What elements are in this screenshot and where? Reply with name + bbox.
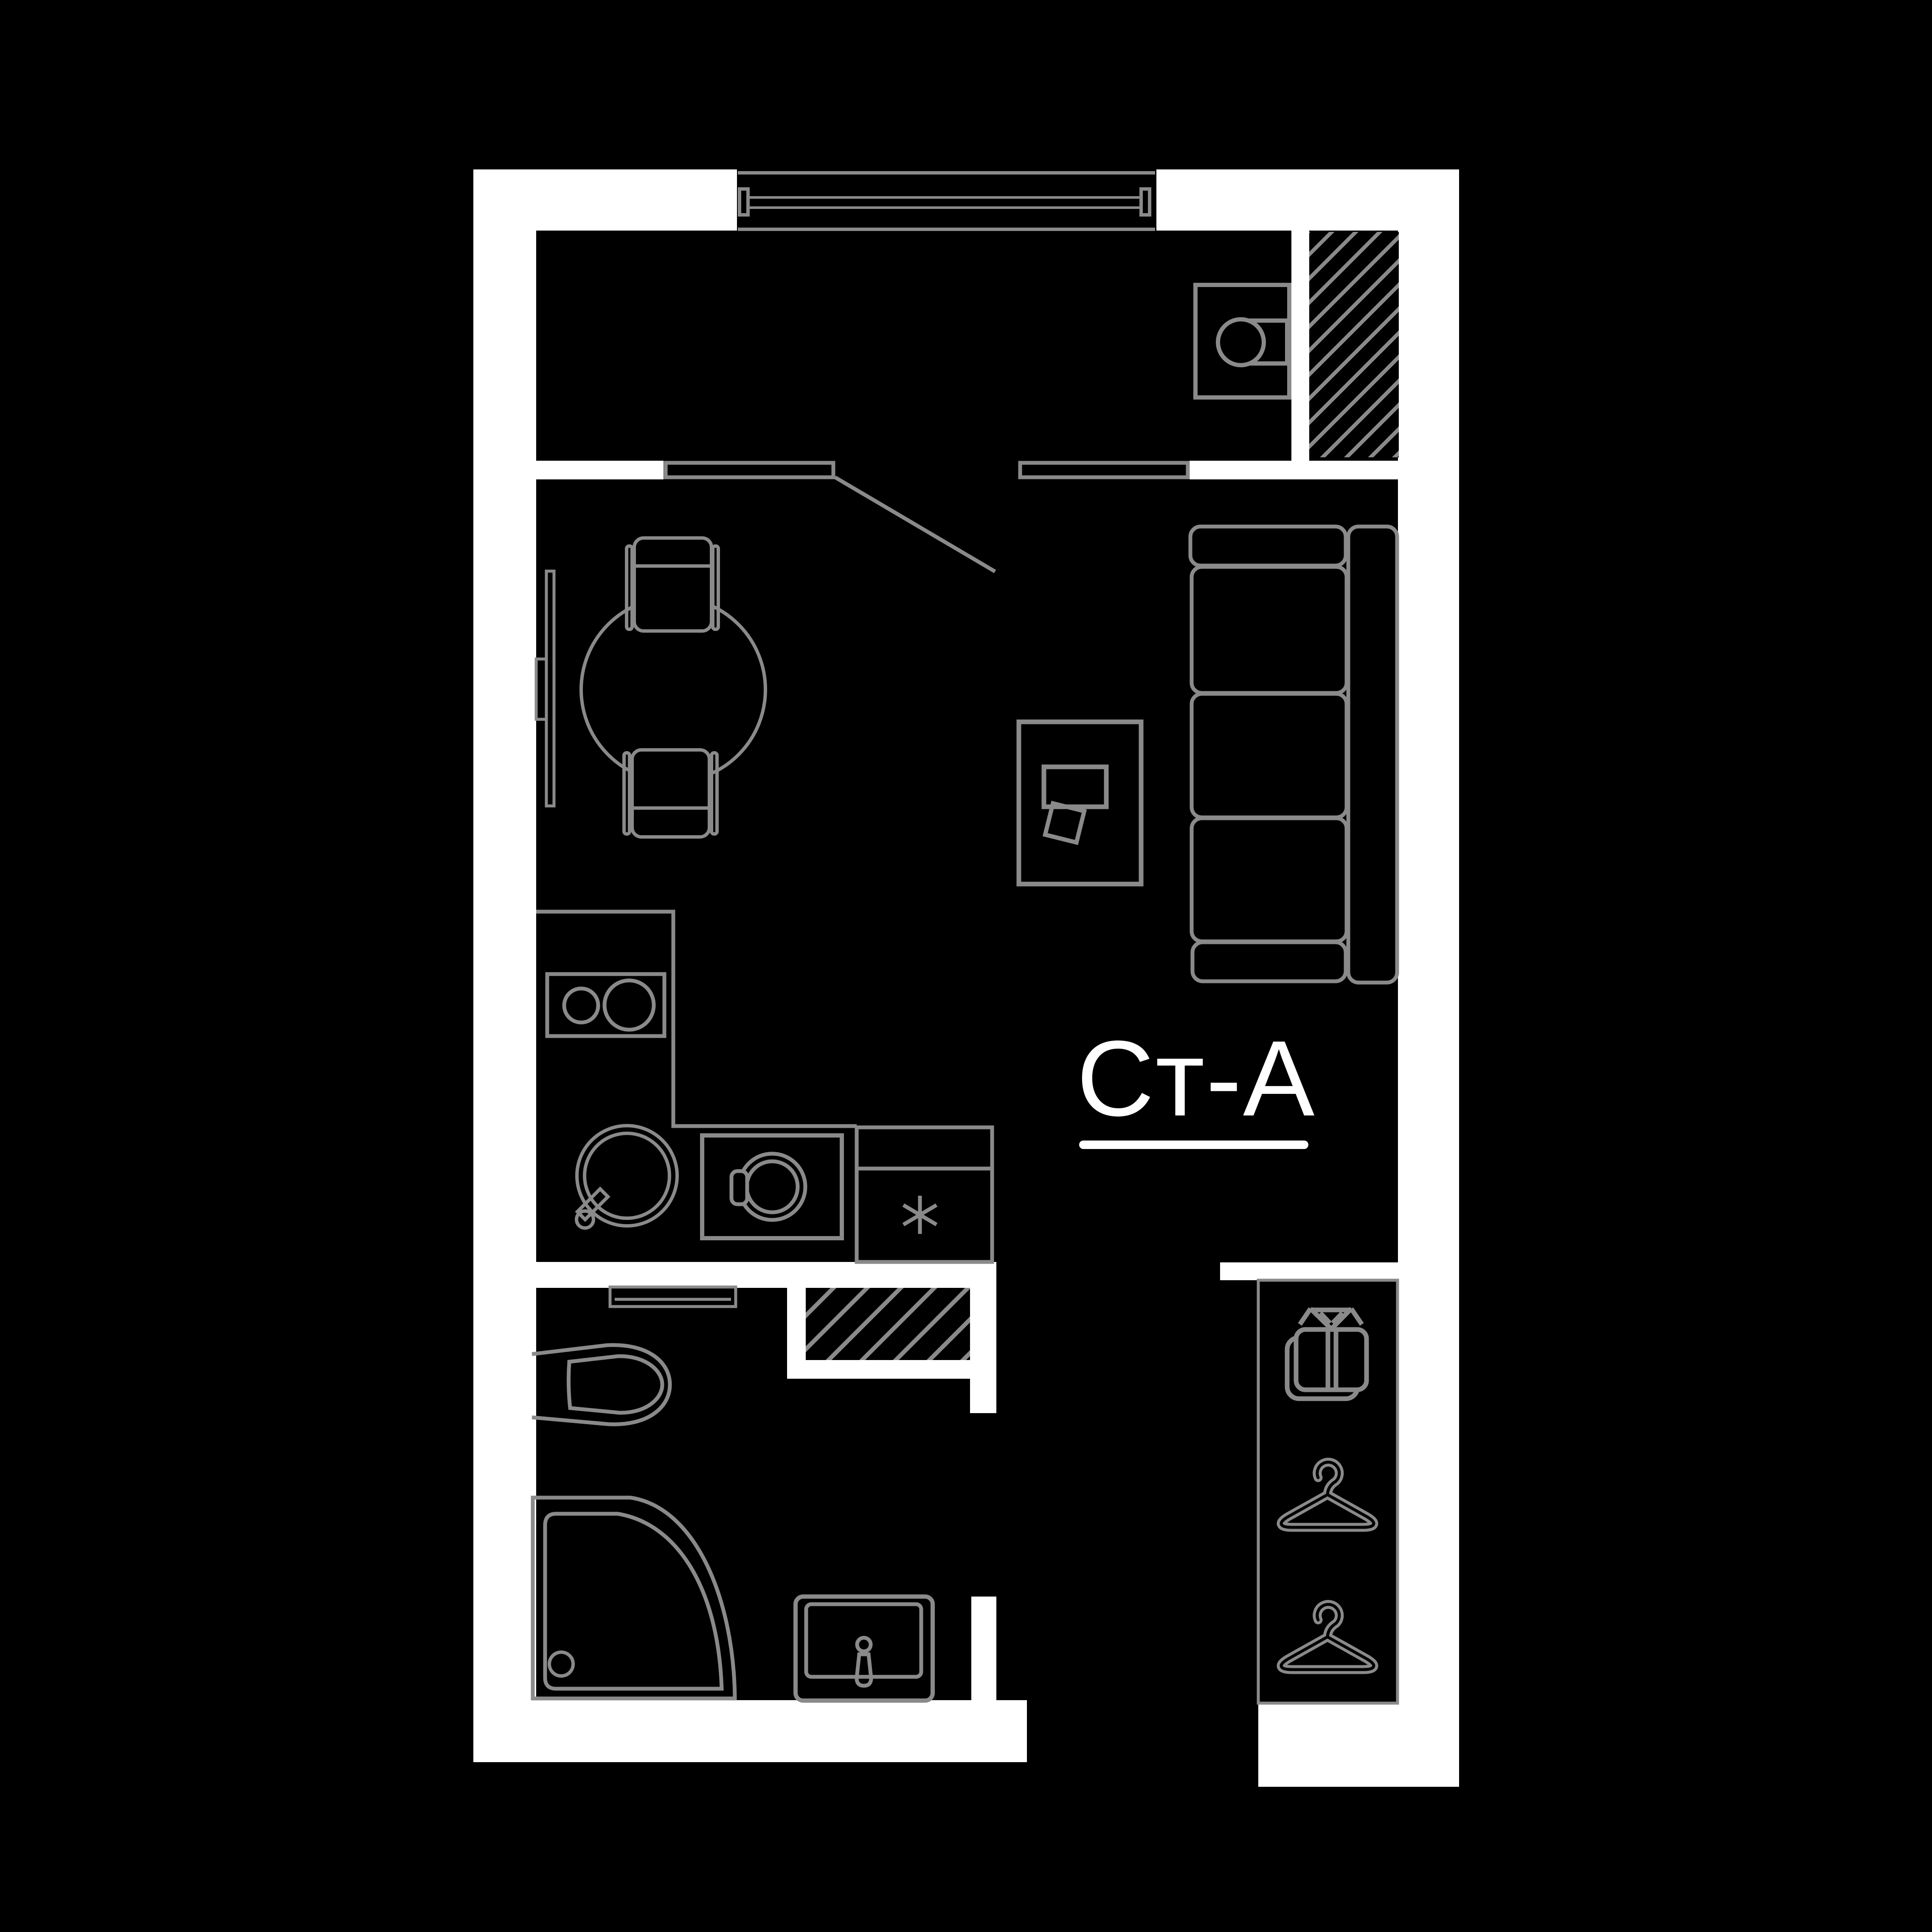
svg-text:Ст-А: Ст-А [1077, 1018, 1316, 1138]
